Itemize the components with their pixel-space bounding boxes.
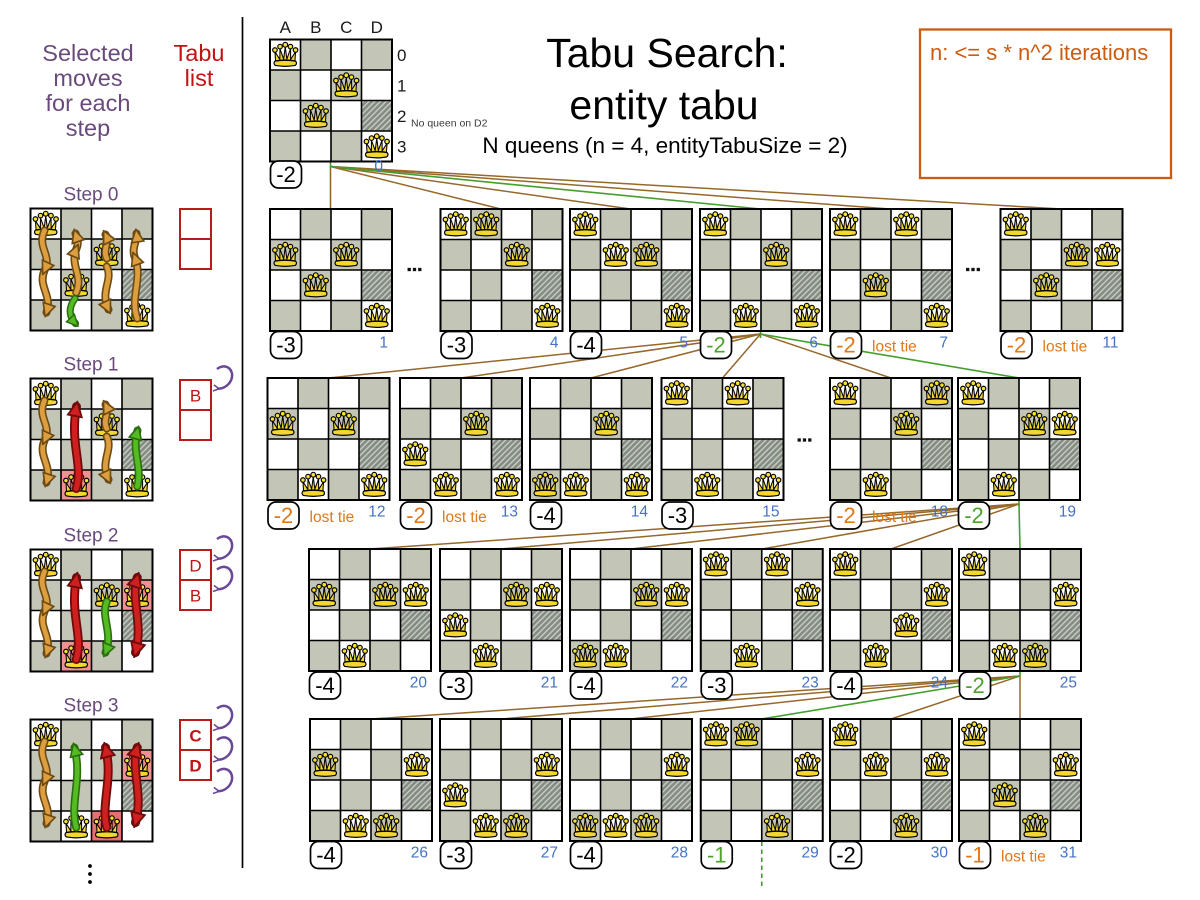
svg-text:0: 0 bbox=[397, 46, 406, 65]
svg-text:1: 1 bbox=[379, 335, 388, 352]
svg-text:24: 24 bbox=[931, 675, 949, 692]
svg-text:B: B bbox=[310, 18, 321, 37]
svg-text:27: 27 bbox=[541, 845, 558, 862]
svg-text:-2: -2 bbox=[965, 673, 985, 698]
svg-text:5: 5 bbox=[679, 335, 688, 352]
svg-text:-1: -1 bbox=[965, 843, 985, 868]
svg-text:lost tie: lost tie bbox=[872, 509, 917, 526]
svg-text:31: 31 bbox=[1060, 845, 1077, 862]
svg-text:-3: -3 bbox=[447, 333, 467, 358]
svg-text:-2: -2 bbox=[964, 503, 984, 528]
svg-text:D: D bbox=[189, 557, 201, 576]
svg-text:25: 25 bbox=[1060, 675, 1077, 692]
svg-text:-4: -4 bbox=[315, 673, 335, 698]
svg-text:lost tie: lost tie bbox=[1001, 849, 1046, 866]
svg-text:-4: -4 bbox=[576, 333, 596, 358]
svg-text:-3: -3 bbox=[276, 333, 296, 358]
svg-text:26: 26 bbox=[411, 845, 428, 862]
svg-text:-3: -3 bbox=[668, 503, 688, 528]
svg-text:0: 0 bbox=[374, 158, 383, 175]
svg-text:-4: -4 bbox=[536, 503, 556, 528]
svg-text:lost tie: lost tie bbox=[310, 509, 355, 526]
svg-text:3: 3 bbox=[397, 137, 406, 156]
svg-text:30: 30 bbox=[931, 845, 949, 862]
svg-text:-2: -2 bbox=[274, 503, 294, 528]
svg-text:-4: -4 bbox=[576, 843, 596, 868]
svg-text:A: A bbox=[280, 18, 292, 37]
svg-text:22: 22 bbox=[671, 675, 688, 692]
svg-text:D: D bbox=[189, 757, 201, 776]
svg-text:-2: -2 bbox=[276, 162, 296, 187]
svg-text:C: C bbox=[340, 18, 352, 37]
svg-text:lost tie: lost tie bbox=[442, 509, 487, 526]
svg-text:28: 28 bbox=[671, 845, 688, 862]
svg-text:No queen on D2: No queen on D2 bbox=[411, 118, 488, 130]
svg-text:Step 0: Step 0 bbox=[64, 185, 119, 206]
svg-text:-1: -1 bbox=[707, 843, 727, 868]
svg-text:20: 20 bbox=[410, 675, 428, 692]
svg-text:for each: for each bbox=[46, 90, 131, 116]
svg-text:1: 1 bbox=[397, 76, 406, 95]
svg-text:N queens (n = 4, entityTabuSiz: N queens (n = 4, entityTabuSize = 2) bbox=[482, 133, 847, 158]
svg-text:-2: -2 bbox=[836, 503, 856, 528]
svg-text:Tabu Search:: Tabu Search: bbox=[546, 30, 788, 76]
svg-text:D: D bbox=[371, 18, 383, 37]
svg-text:23: 23 bbox=[802, 675, 819, 692]
svg-text:list: list bbox=[185, 65, 214, 91]
svg-text:19: 19 bbox=[1059, 504, 1076, 521]
svg-text:29: 29 bbox=[802, 845, 819, 862]
svg-text:18: 18 bbox=[931, 504, 948, 521]
svg-text:step: step bbox=[66, 115, 110, 141]
svg-text:Tabu: Tabu bbox=[174, 40, 225, 66]
svg-text:-4: -4 bbox=[836, 673, 856, 698]
svg-text:-2: -2 bbox=[836, 333, 856, 358]
svg-text:lost tie: lost tie bbox=[1043, 339, 1088, 356]
svg-text:11: 11 bbox=[1102, 335, 1118, 352]
svg-text:moves: moves bbox=[53, 65, 122, 91]
svg-text:Step 2: Step 2 bbox=[64, 526, 119, 547]
svg-text:Step 1: Step 1 bbox=[64, 355, 119, 376]
svg-text:-4: -4 bbox=[576, 673, 596, 698]
svg-text:n: <= s * n^2 iterations: n: <= s * n^2 iterations bbox=[930, 40, 1148, 65]
svg-text:B: B bbox=[190, 387, 201, 406]
svg-text:-2: -2 bbox=[706, 333, 726, 358]
svg-text:B: B bbox=[190, 587, 201, 606]
svg-text:6: 6 bbox=[809, 335, 818, 352]
svg-text:Step 3: Step 3 bbox=[64, 696, 119, 717]
svg-text:-3: -3 bbox=[707, 673, 727, 698]
svg-text:2: 2 bbox=[397, 107, 406, 126]
svg-text:-2: -2 bbox=[1007, 333, 1027, 358]
svg-text:-2: -2 bbox=[836, 843, 856, 868]
svg-text:4: 4 bbox=[550, 335, 559, 352]
svg-text:-3: -3 bbox=[446, 843, 466, 868]
svg-text:7: 7 bbox=[939, 335, 948, 352]
svg-text:-2: -2 bbox=[406, 503, 426, 528]
svg-text:C: C bbox=[189, 727, 201, 746]
svg-text:-4: -4 bbox=[316, 843, 336, 868]
svg-text:Selected: Selected bbox=[42, 40, 133, 66]
svg-text:21: 21 bbox=[541, 675, 558, 692]
svg-text:entity tabu: entity tabu bbox=[569, 82, 758, 128]
svg-text:13: 13 bbox=[501, 504, 518, 521]
svg-text:-3: -3 bbox=[446, 673, 466, 698]
svg-text:12: 12 bbox=[368, 504, 385, 521]
svg-text:15: 15 bbox=[762, 504, 779, 521]
svg-text:14: 14 bbox=[631, 504, 649, 521]
svg-text:lost tie: lost tie bbox=[872, 339, 917, 356]
